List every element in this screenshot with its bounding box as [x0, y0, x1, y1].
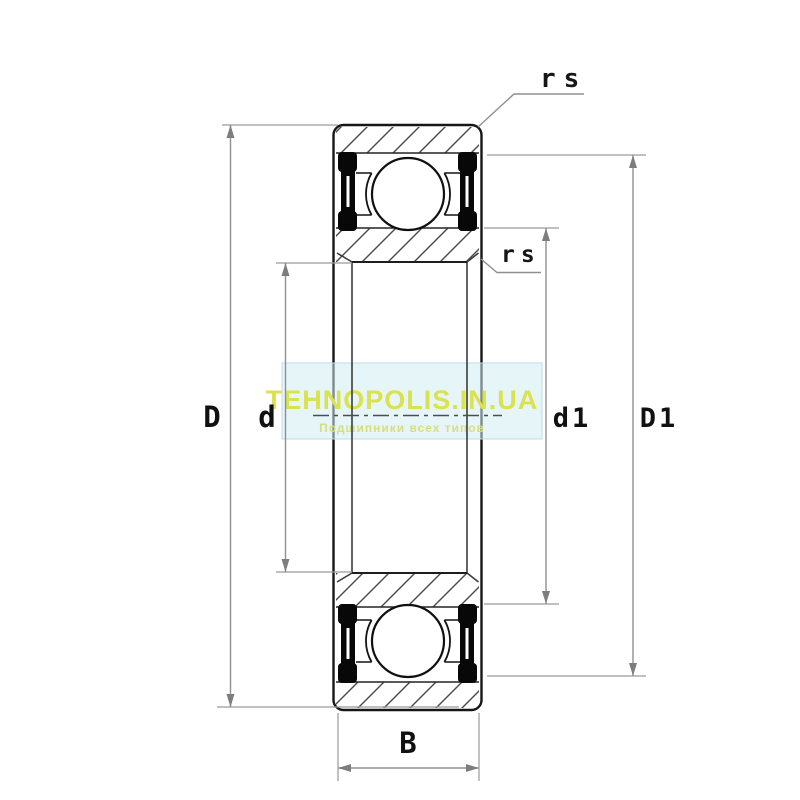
bearing-dimension-drawing: TEHNOPOLIS.IN.UA Подшипники всех типов D… [0, 0, 800, 800]
label-B: B [399, 726, 416, 760]
label-d: d [258, 400, 275, 434]
label-rs-top: rs [540, 64, 587, 94]
top-section [335, 127, 480, 262]
watermark: TEHNOPOLIS.IN.UA Подшипники всех типов [266, 363, 542, 439]
leader-rs-side: rs [481, 242, 541, 273]
label-D1: D1 [640, 403, 679, 434]
bottom-section [335, 573, 480, 708]
watermark-text: TEHNOPOLIS.IN.UA [266, 385, 539, 415]
dim-B: B [338, 713, 479, 781]
label-rs-side: rs [501, 242, 541, 268]
label-D: D [203, 400, 220, 434]
leader-rs-top: rs [478, 64, 587, 127]
bearing-drawing-svg: TEHNOPOLIS.IN.UA Подшипники всех типов D… [0, 0, 800, 800]
label-d1: d1 [553, 403, 592, 434]
watermark-subtext: Подшипники всех типов [319, 421, 485, 435]
ball-bottom [372, 605, 444, 677]
ball-top [372, 158, 444, 230]
